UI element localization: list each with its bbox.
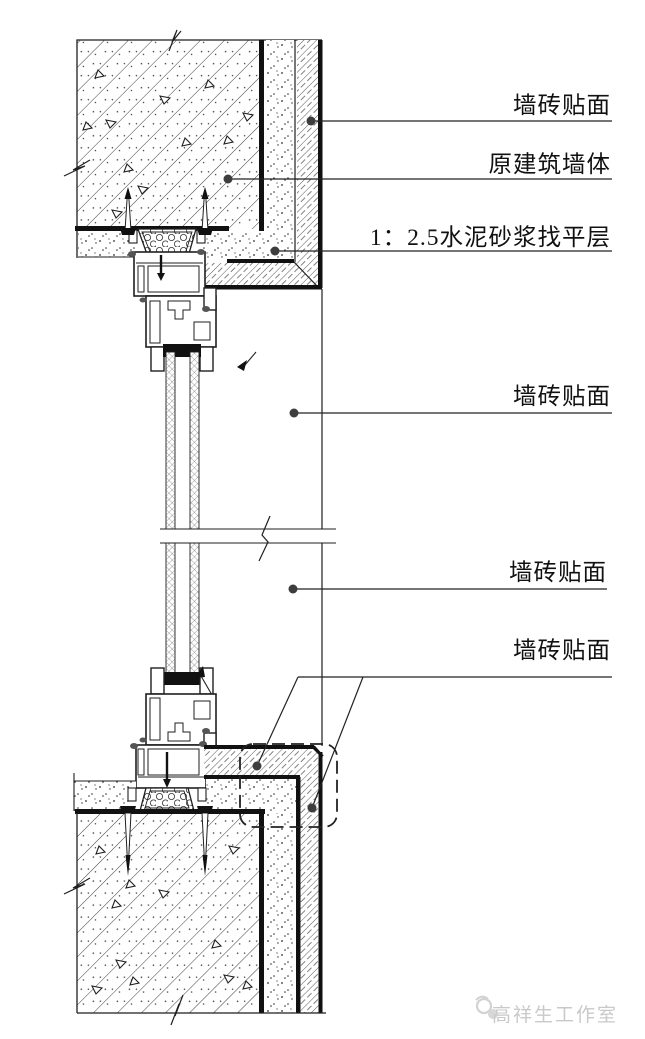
watermark-text: 高祥生工作室: [492, 1004, 618, 1026]
concrete-edge-thick-line: [259, 813, 264, 1013]
leader-dot-4: [290, 409, 299, 418]
sash-chamber: [194, 701, 210, 719]
glass-pane-inner-lower: [190, 543, 199, 674]
mortar-leveling-strip-top: [266, 40, 294, 262]
leader-dot-2: [224, 175, 233, 184]
sash-chamber: [150, 698, 160, 740]
glazing-gasket-bottom: [163, 672, 201, 685]
section-break: [158, 516, 338, 561]
sealant-bead: [128, 251, 136, 257]
leader-dot-1: [307, 117, 316, 126]
concrete-wall-top: [77, 40, 262, 229]
glass-pane-outer-lower: [166, 543, 175, 674]
sealant-bead: [202, 728, 210, 734]
leader-dot-6b: [308, 804, 317, 813]
tile-facing-strip-top: [297, 40, 318, 287]
detail-drawing-sheet: 墙砖贴面 原建筑墙体 1：2.5水泥砂浆找平层 墙砖贴面 墙砖贴面 墙砖贴面 高…: [0, 0, 645, 1039]
glass-pane-inner-upper: [190, 352, 199, 529]
concrete-top-thick-line: [75, 809, 265, 814]
section-detail-drawing: 墙砖贴面 原建筑墙体 1：2.5水泥砂浆找平层 墙砖贴面 墙砖贴面 墙砖贴面 高…: [0, 0, 645, 1039]
mortar-bottom-thick-line: [227, 259, 294, 263]
glazing-unit: [166, 352, 199, 674]
label-tile-facing-3: 墙砖贴面: [509, 559, 607, 586]
watermark: 高祥生工作室: [476, 997, 618, 1026]
leader-dot-5: [289, 585, 298, 594]
label-tile-facing-2: 墙砖贴面: [513, 383, 611, 410]
tile-inner-thick-line-bottom: [296, 777, 301, 1013]
label-tile-facing-4: 墙砖贴面: [513, 637, 611, 664]
label-tile-facing-1: 墙砖贴面: [513, 92, 611, 119]
concrete-wall-bottom: [77, 813, 262, 1013]
label-cement-mortar: 1：2.5水泥砂浆找平层: [370, 224, 611, 251]
window-sill-frame: [130, 666, 216, 788]
sealant-bead: [202, 306, 210, 312]
glazing-bead-right: [200, 347, 213, 371]
mortar-band-right: [198, 231, 294, 259]
mortar-band-right-bottom: [206, 777, 296, 811]
leader-dot-3: [271, 247, 280, 256]
sealant-bead: [197, 249, 205, 255]
glass-pane-outer-upper: [166, 352, 175, 529]
sealant-bead: [130, 743, 138, 749]
pointer-tail: [245, 352, 256, 365]
glazing-bead-left: [151, 347, 164, 371]
tile-corner-top-thick-line: [204, 745, 314, 750]
pointer-arrowhead: [237, 360, 247, 371]
tile-return-inner-thick-line: [204, 775, 300, 779]
break-gap: [158, 530, 338, 542]
sealant-bead: [140, 298, 147, 303]
leader-dot-6a: [253, 762, 262, 771]
frame-chamber: [148, 749, 199, 775]
tile-head-return: [200, 263, 297, 287]
sash-chamber: [150, 301, 160, 343]
sash-chamber: [194, 322, 210, 340]
pad-bracket-right: [198, 788, 206, 801]
mortar-leveling-strip-bottom: [266, 813, 293, 1013]
sealant-bead: [140, 738, 147, 743]
frame-chamber: [138, 749, 144, 775]
concrete-edge-thick-line: [259, 40, 264, 231]
pad-bracket-left: [128, 788, 136, 801]
glazing-bead-left: [151, 668, 164, 694]
label-original-wall: 原建筑墙体: [489, 151, 612, 178]
label-texts: 墙砖贴面 原建筑墙体 1：2.5水泥砂浆找平层 墙砖贴面 墙砖贴面 墙砖贴面: [370, 92, 611, 664]
frame-chamber: [148, 266, 199, 292]
frame-chamber: [138, 266, 144, 292]
